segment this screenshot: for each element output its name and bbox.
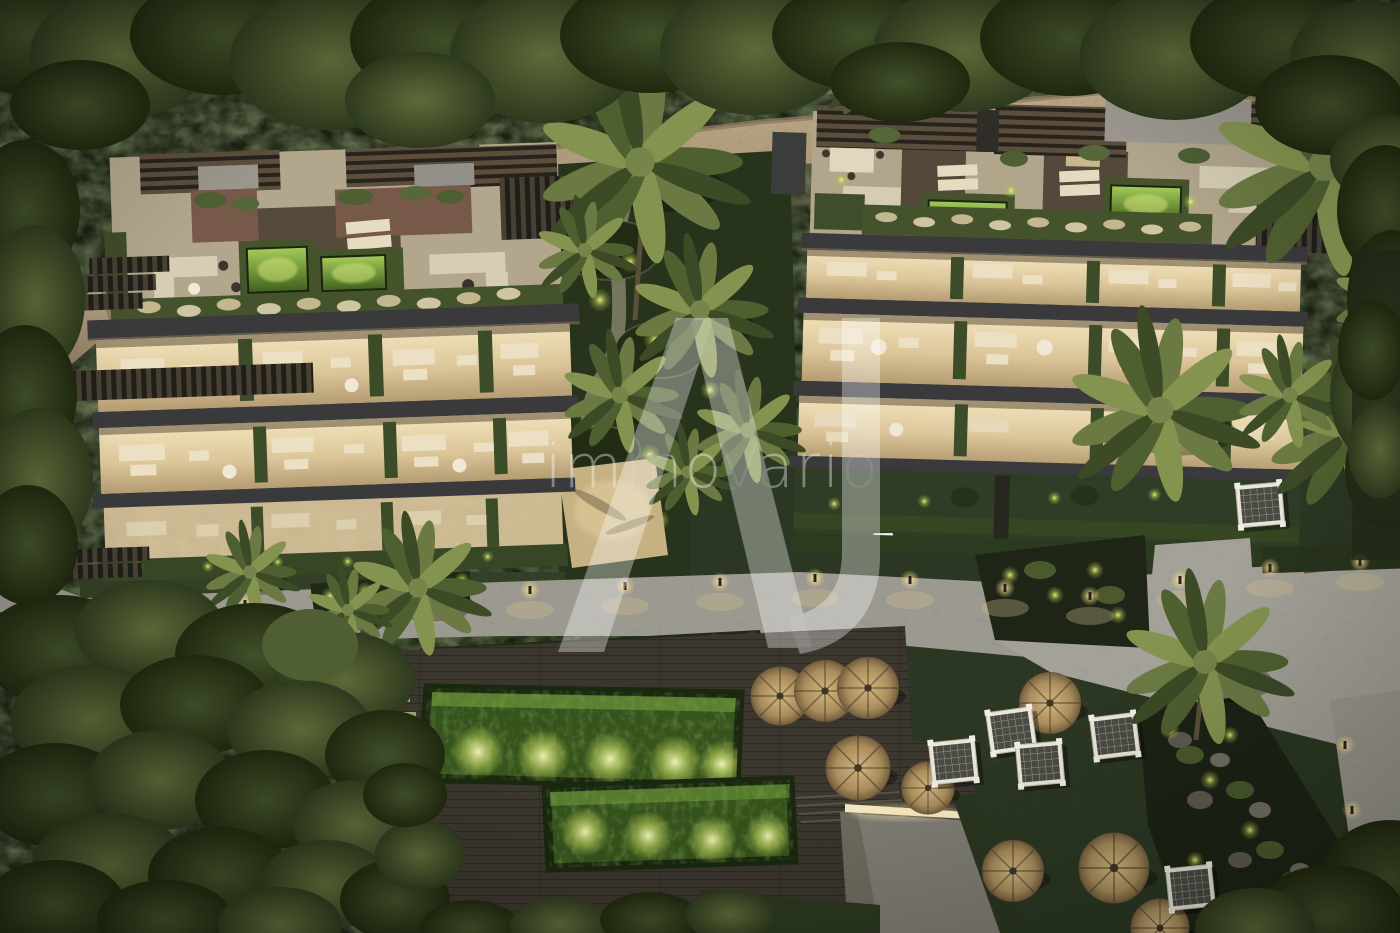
watermark-text: immoVario xyxy=(545,432,880,502)
render-canvas: immoVario xyxy=(0,0,1400,933)
aerial-render: Aerial dusk rendering of a luxury apartm… xyxy=(0,0,1400,933)
